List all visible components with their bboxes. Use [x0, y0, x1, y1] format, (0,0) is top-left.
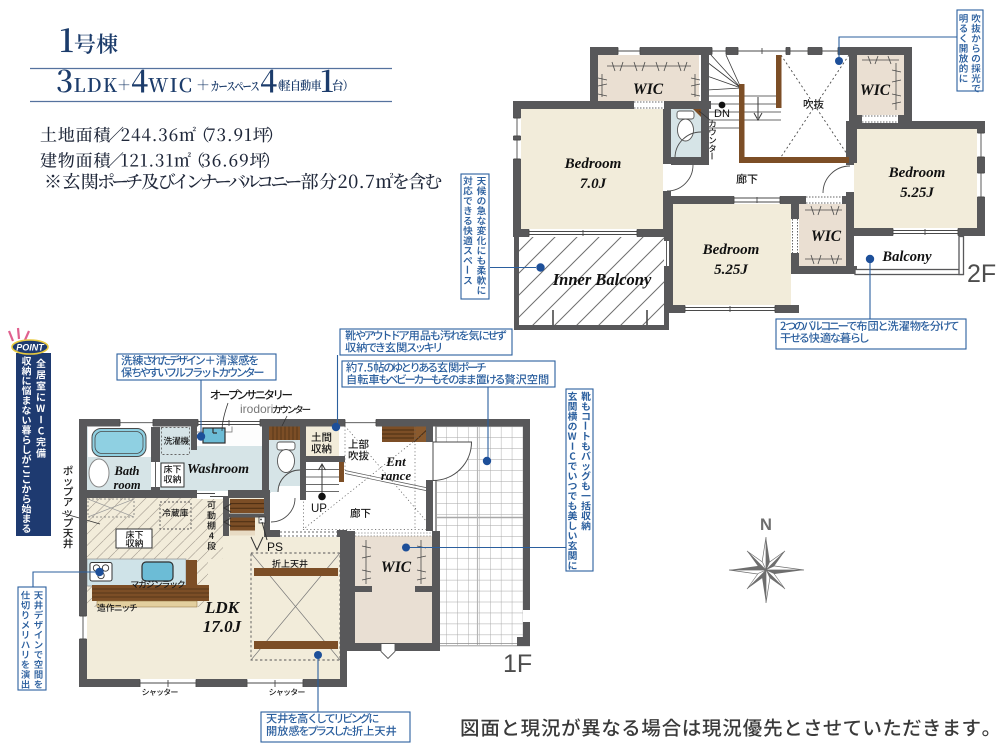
svg-text:1F: 1F	[503, 650, 532, 678]
svg-text:WIC: WIC	[381, 559, 412, 576]
svg-text:room: room	[113, 478, 140, 492]
svg-text:LDK: LDK	[204, 598, 241, 617]
svg-text:Ent: Ent	[385, 454, 406, 469]
svg-text:Balcony: Balcony	[881, 249, 932, 265]
svg-text:WIC: WIC	[860, 82, 891, 99]
svg-text:Bedroom: Bedroom	[702, 242, 760, 258]
svg-text:UP: UP	[311, 503, 327, 515]
svg-text:Bedroom: Bedroom	[564, 156, 622, 172]
svg-text:N: N	[760, 516, 772, 534]
svg-text:PS: PS	[267, 540, 283, 554]
svg-text:Inner Balcony: Inner Balcony	[552, 270, 652, 289]
svg-text:Bath: Bath	[113, 464, 139, 478]
svg-text:2F: 2F	[967, 260, 996, 288]
svg-text:irodori: irodori	[240, 402, 273, 416]
svg-text:7.0J: 7.0J	[580, 176, 607, 192]
svg-text:WIC: WIC	[811, 228, 842, 245]
svg-text:POINT: POINT	[16, 343, 45, 353]
svg-text:Bedroom: Bedroom	[888, 165, 946, 181]
svg-text:DN: DN	[714, 108, 730, 120]
svg-text:Washroom: Washroom	[187, 462, 249, 477]
svg-text:rance: rance	[381, 468, 412, 483]
svg-text:WIC: WIC	[633, 81, 664, 98]
svg-text:5.25J: 5.25J	[714, 262, 748, 278]
svg-text:17.0J: 17.0J	[203, 617, 242, 636]
svg-text:5.25J: 5.25J	[900, 185, 934, 201]
